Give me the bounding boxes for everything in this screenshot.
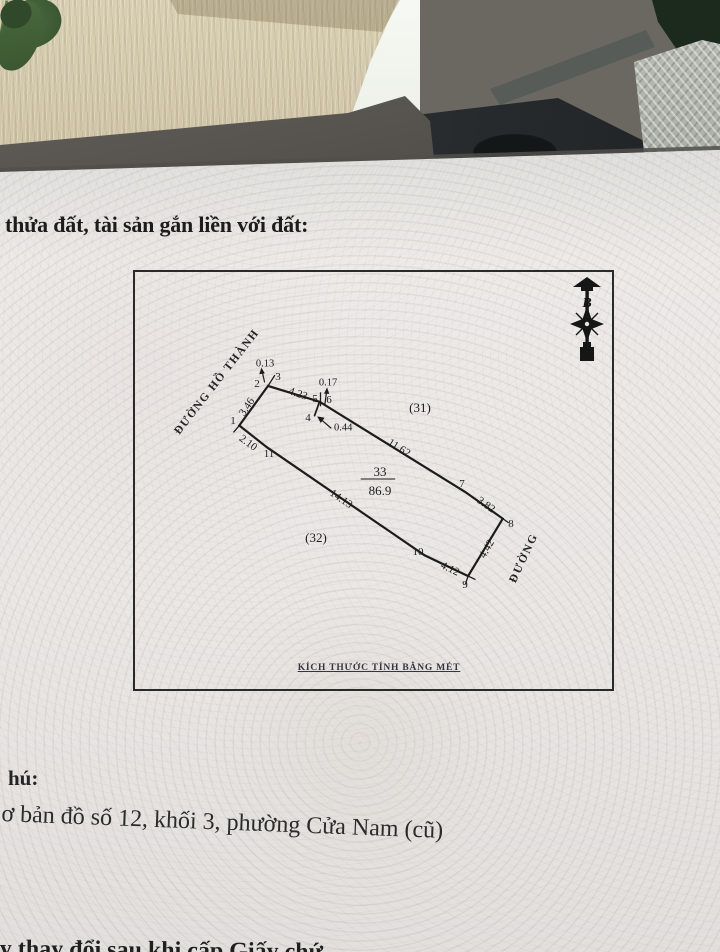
dim-offset-4: 0.44 [334, 423, 352, 434]
north-arrow: B [565, 277, 609, 363]
parcel-number: 33 [374, 464, 387, 480]
vertex-label-1: 1 [230, 415, 236, 427]
vertex-label-9: 9 [462, 579, 468, 591]
note-fragment-3: y thay đổi sau khi cấp Giấy chứ [0, 936, 323, 952]
vertex-label-3: 3 [275, 371, 281, 383]
note-fragment-2: ơ bản đồ số 12, khối 3, phường Cửa Nam (… [1, 801, 444, 845]
dim-offset-5-6: 0.17 [319, 378, 337, 389]
parcel-outline [135, 272, 612, 689]
north-letter: B [581, 296, 591, 311]
vertex-label-2: 2 [254, 378, 260, 390]
neighbor-label-32: (32) [305, 530, 327, 546]
units-note: KÍCH THƯỚC TÍNH BẰNG MÉT [259, 663, 499, 673]
vertex-label-7: 7 [459, 478, 465, 490]
vertex-label-8: 8 [508, 518, 514, 530]
neighbor-label-31: (31) [409, 400, 431, 416]
vertex-label-4: 4 [305, 412, 311, 424]
parcel-area: 86.9 [369, 483, 392, 499]
certificate-page: thửa đất, tài sản gắn liền với đất: [0, 146, 720, 952]
section-title: thửa đất, tài sản gắn liền với đất: [5, 212, 308, 238]
vertex-label-5: 5 [312, 393, 318, 405]
map-frame: B ĐƯỜNG HỒ THÀNH ĐƯỜNG (31) (32) 33 86.9… [133, 270, 614, 691]
dim-offset-2-3: 0.13 [256, 359, 274, 370]
vertex-label-6: 6 [326, 394, 332, 406]
note-fragment-1: hú: [8, 766, 38, 791]
vertex-label-11: 11 [264, 448, 275, 460]
photo-of-land-certificate: thửa đất, tài sản gắn liền với đất: [0, 0, 720, 952]
vertex-label-10: 10 [413, 546, 424, 558]
